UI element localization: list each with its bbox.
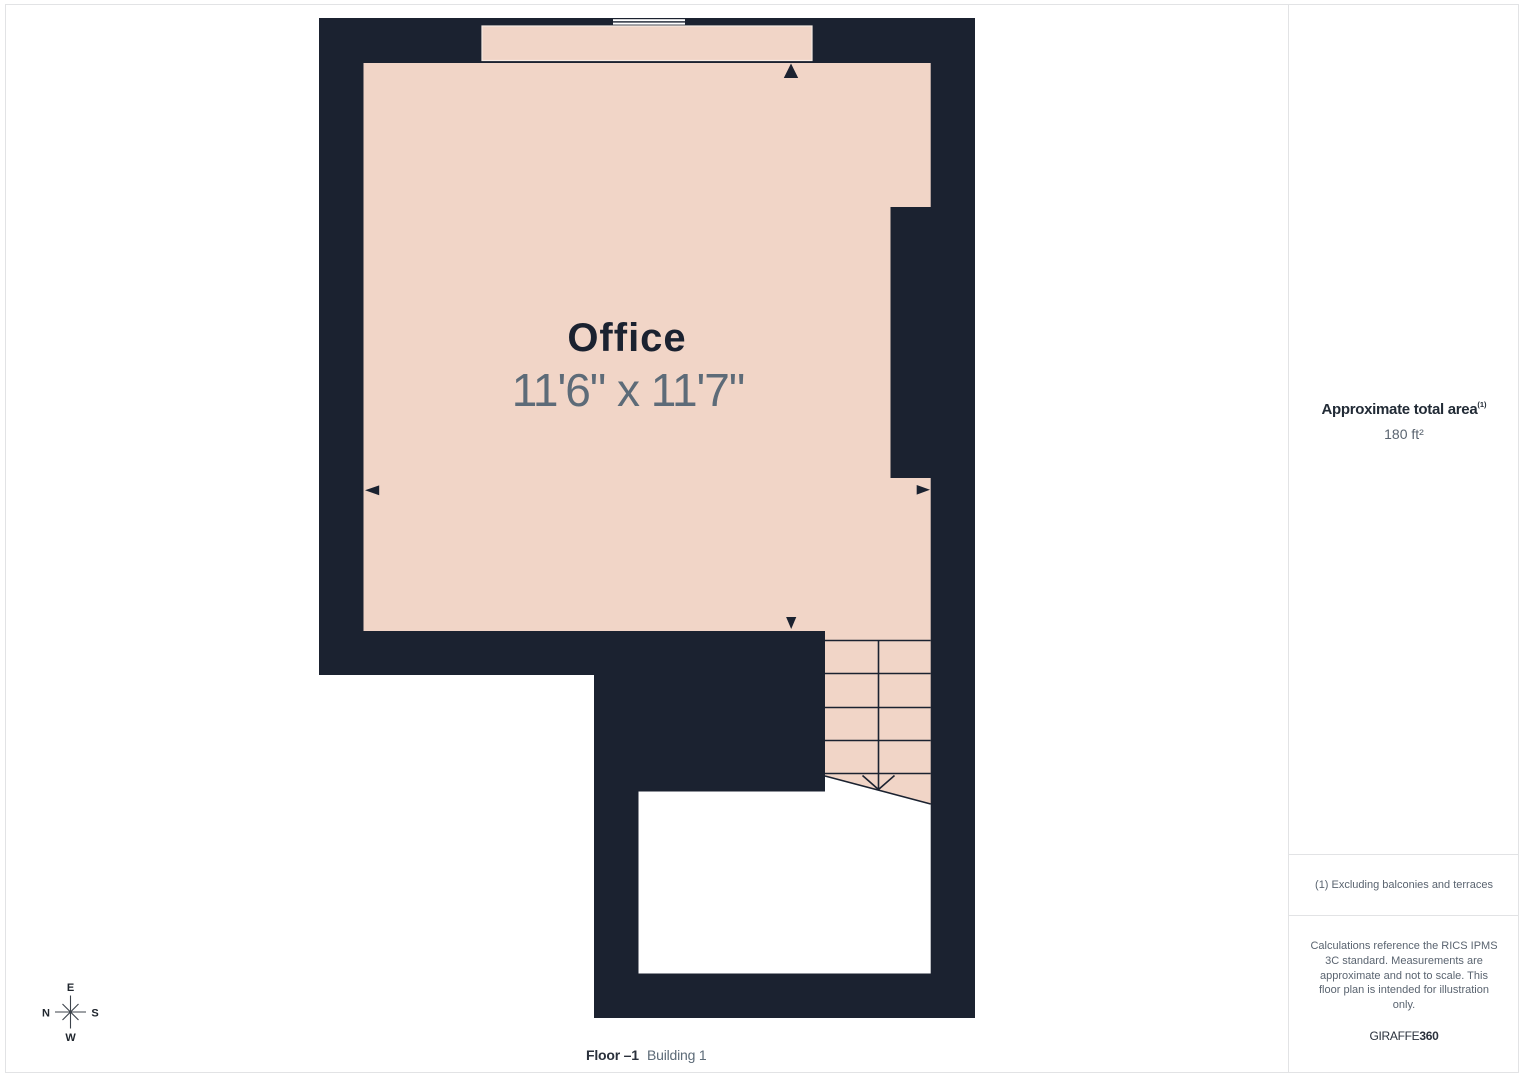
- svg-text:E: E: [67, 982, 74, 994]
- svg-text:11'6" x 11'7": 11'6" x 11'7": [512, 364, 744, 416]
- svg-text:W: W: [65, 1032, 76, 1044]
- svg-text:Floor –1: Floor –1: [586, 1047, 639, 1063]
- svg-text:S: S: [91, 1008, 98, 1020]
- svg-text:Building 1: Building 1: [647, 1047, 707, 1063]
- svg-text:Office: Office: [567, 316, 686, 360]
- svg-text:N: N: [42, 1008, 50, 1020]
